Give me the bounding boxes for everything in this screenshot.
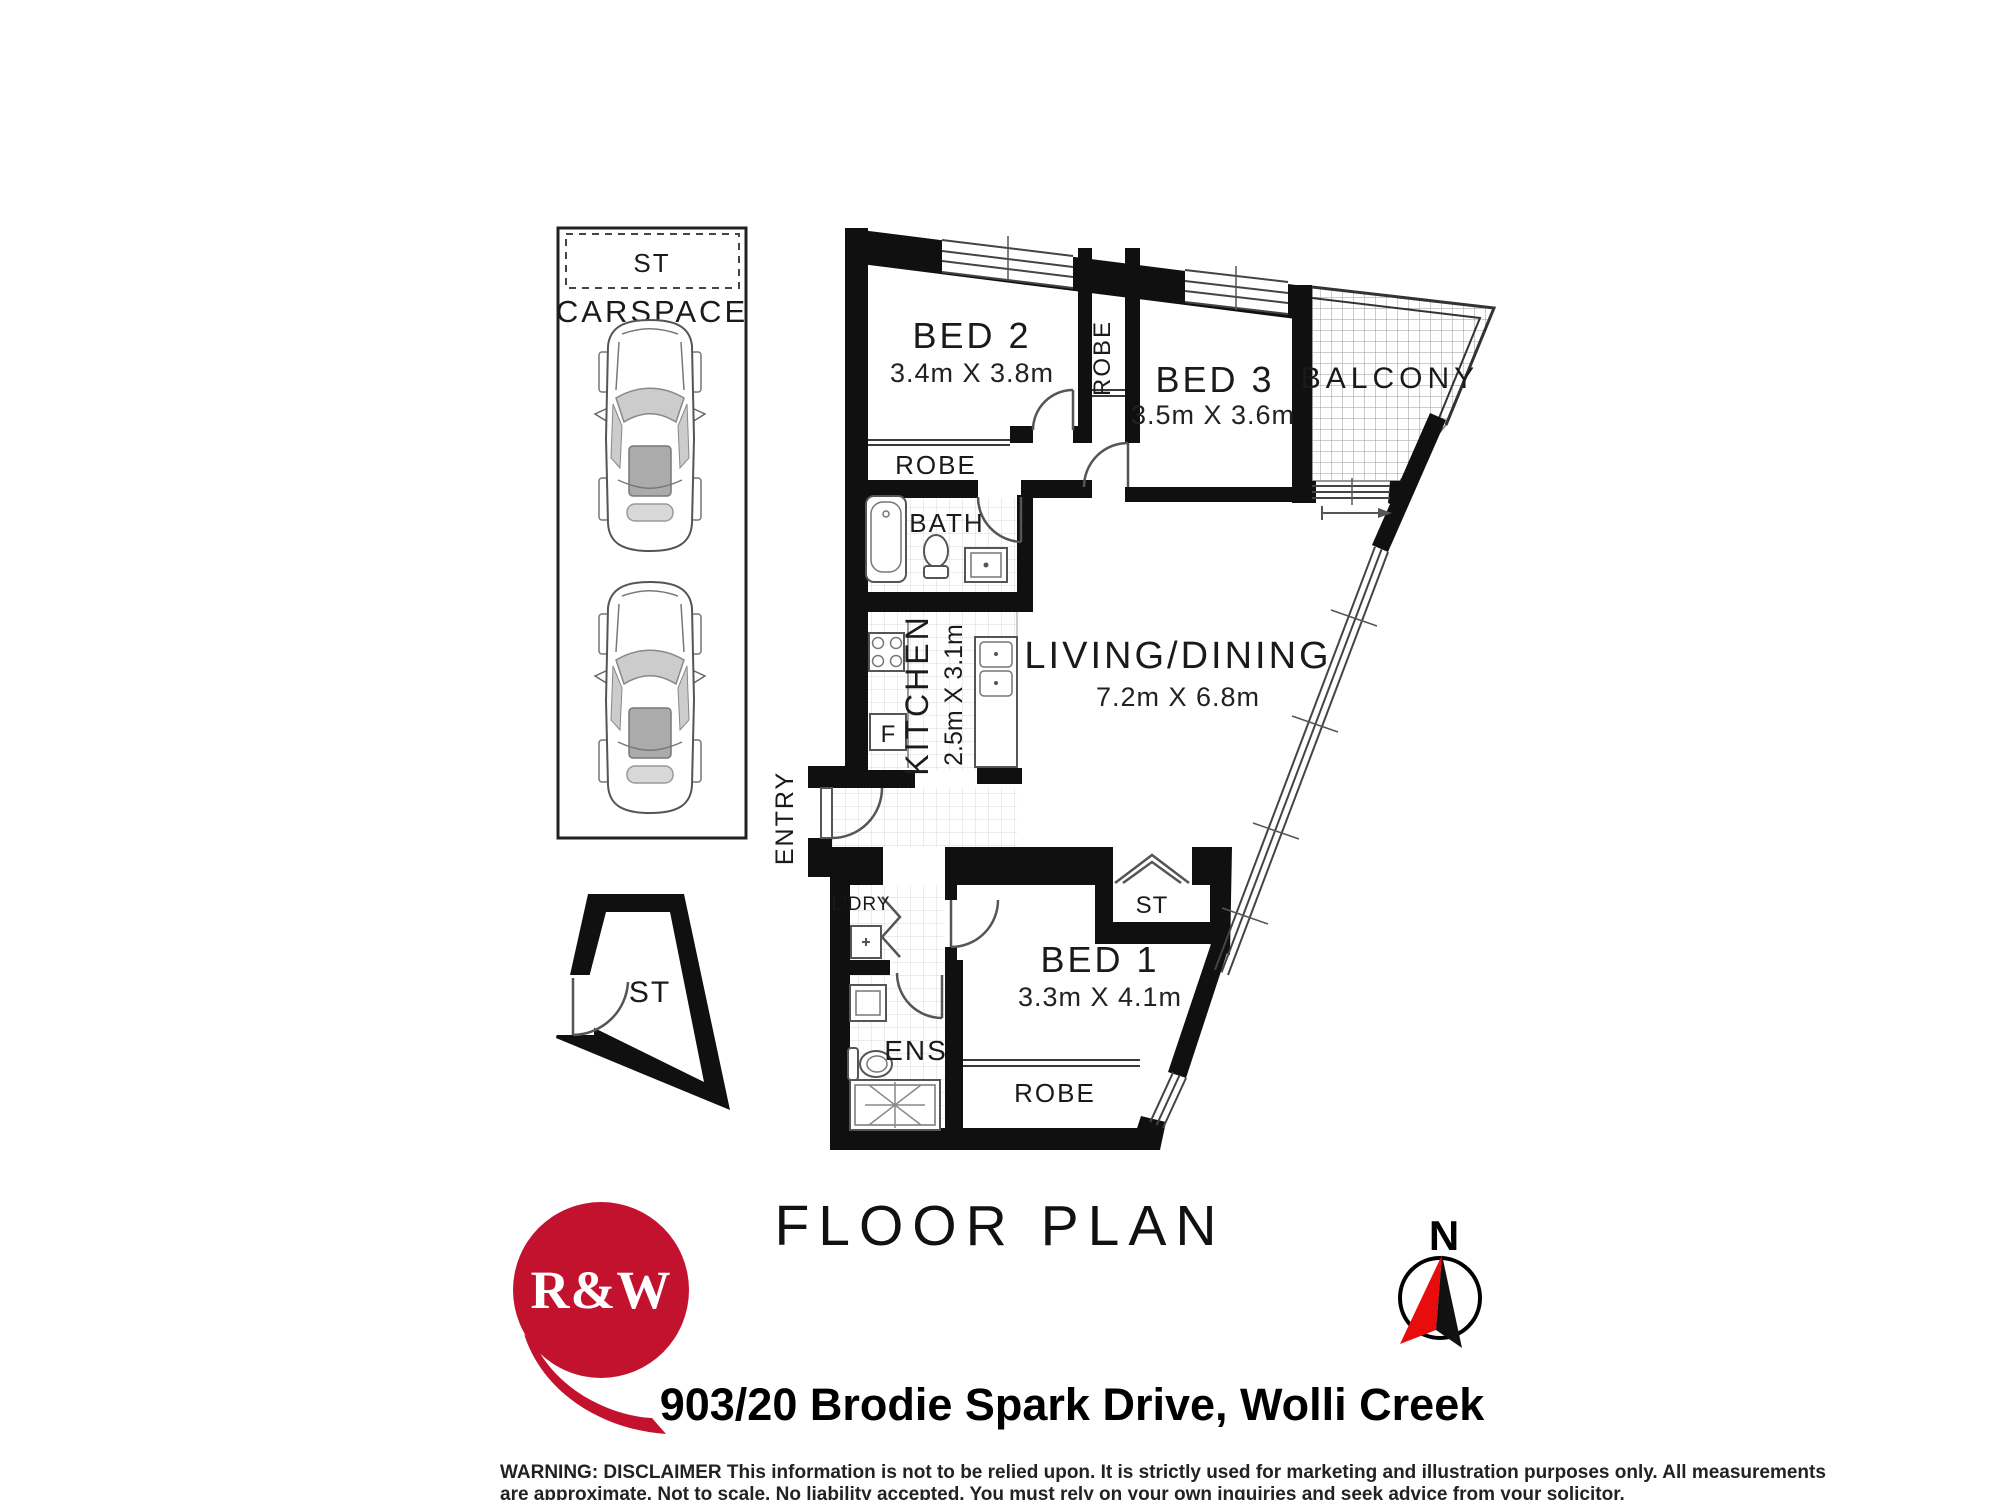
room-dims-bed2: 3.4m X 3.8m bbox=[890, 358, 1054, 388]
robe-label-bed1: ROBE bbox=[1014, 1078, 1096, 1108]
room-dims-kitchen: 2.5m X 3.1m bbox=[940, 624, 968, 766]
room-label-bath: BATH bbox=[909, 508, 984, 538]
ens-vanity bbox=[850, 985, 886, 1021]
hall-floor bbox=[832, 788, 1017, 847]
room-dims-bed1: 3.3m X 4.1m bbox=[1018, 982, 1182, 1012]
disclaimer-line-2: are approximate. Not to scale. No liabil… bbox=[500, 1484, 1625, 1500]
rw-logo-text: R&W bbox=[531, 1260, 672, 1320]
bed1-door bbox=[951, 900, 998, 947]
fridge-label: F bbox=[881, 721, 896, 748]
room-dims-living: 7.2m X 6.8m bbox=[1096, 682, 1260, 712]
floor-plan-drawing: ST CARSPACE ST bbox=[0, 0, 2000, 1500]
bathtub bbox=[866, 496, 906, 582]
island-bench bbox=[975, 637, 1017, 767]
window-bed2 bbox=[942, 236, 1073, 288]
robe-label-bed2: ROBE bbox=[895, 450, 977, 480]
st-cupboard-doors bbox=[1115, 855, 1189, 883]
car-1 bbox=[595, 320, 705, 551]
storage-room-label: ST bbox=[629, 976, 671, 1009]
balcony-sliding-door bbox=[1312, 478, 1392, 520]
robe-label-mid: ROBE bbox=[1089, 320, 1116, 396]
floor-plan-page: ST CARSPACE ST bbox=[0, 0, 2000, 1500]
room-label-bed2: BED 2 bbox=[912, 315, 1031, 356]
st-living-label: ST bbox=[1136, 892, 1169, 919]
compass-north-label: N bbox=[1429, 1212, 1459, 1259]
room-label-kitchen: KITCHEN bbox=[899, 614, 935, 775]
address: 903/20 Brodie Spark Drive, Wolli Creek bbox=[660, 1379, 1486, 1430]
car-2 bbox=[595, 582, 705, 813]
corridor-floor bbox=[883, 885, 945, 975]
disclaimer-line-1: WARNING: DISCLAIMER This information is … bbox=[500, 1462, 1826, 1483]
page-title: FLOOR PLAN bbox=[774, 1194, 1225, 1258]
room-label-bed3: BED 3 bbox=[1155, 359, 1274, 400]
window-living-wall bbox=[1215, 547, 1388, 975]
compass-needle-red bbox=[1400, 1255, 1442, 1344]
room-label-balcony: BALCONY bbox=[1301, 362, 1479, 395]
laundry-label: L'DRY bbox=[832, 894, 891, 915]
bed2-door bbox=[1033, 390, 1073, 430]
storage-room: ST bbox=[552, 894, 730, 1110]
carspace-storage-label: ST bbox=[633, 248, 670, 278]
shower bbox=[850, 1080, 940, 1130]
entry-label: ENTRY bbox=[771, 771, 799, 865]
bath-toilet bbox=[924, 535, 948, 578]
compass-icon: N bbox=[1400, 1212, 1480, 1348]
room-label-bed1: BED 1 bbox=[1040, 939, 1159, 980]
laundry-tub bbox=[851, 926, 881, 958]
room-label-living: LIVING/DINING bbox=[1024, 635, 1331, 677]
carspace-area: ST CARSPACE bbox=[556, 228, 748, 838]
bath-vanity bbox=[965, 548, 1007, 582]
room-dims-bed3: 3.5m X 3.6m bbox=[1131, 400, 1295, 430]
ens-label: ENS bbox=[884, 1035, 948, 1066]
